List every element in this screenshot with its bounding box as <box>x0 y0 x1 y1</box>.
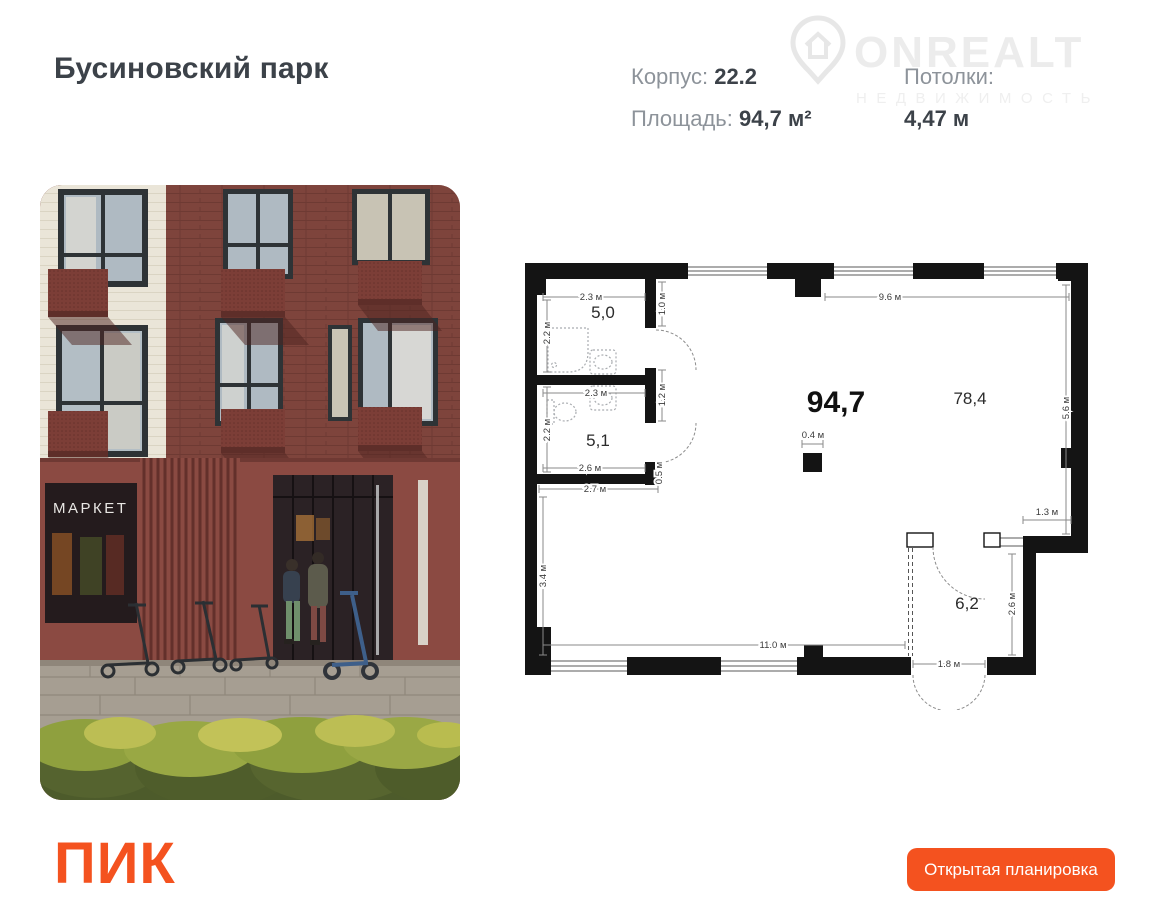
area-label: Площадь: <box>631 106 733 131</box>
dim-label: 11.0 м <box>760 640 787 651</box>
dim-label: 2.6 м <box>1007 593 1018 615</box>
dim-label: 2.2 м <box>542 322 553 344</box>
dim-label: 2.2 м <box>542 419 553 441</box>
floorplan: 2.3 м 9.6 м 2.3 м 2.6 м 2.7 м 1.3 м 11.0… <box>523 260 1093 710</box>
korpus-label: Корпус: <box>631 64 708 89</box>
window <box>328 325 352 421</box>
room-label: 5,1 <box>586 431 610 450</box>
dim-label: 1.2 м <box>657 384 668 406</box>
location-pin-house-icon <box>793 18 843 81</box>
total-area-label: 94,7 <box>807 386 865 419</box>
market-sign-text: МАРКЕТ <box>53 500 128 517</box>
dim-label: 9.6 м <box>879 292 901 303</box>
facade-ground-floor: МАРКЕТ <box>40 458 460 665</box>
room-label: 6,2 <box>955 594 979 613</box>
area-value: 94,7 м² <box>739 106 812 131</box>
ceilings-row: Потолки: <box>904 64 994 90</box>
ceilings-label: Потолки: <box>904 64 994 89</box>
watermark-tagline: НЕДВИЖИМОСТЬ <box>856 90 1100 107</box>
open-layout-button[interactable]: Открытая планировка <box>907 848 1115 891</box>
structural-column <box>803 453 822 472</box>
page-title: Бусиновский парк <box>54 52 329 86</box>
korpus-value: 22.2 <box>714 64 757 89</box>
window <box>352 189 430 265</box>
storefront-market: МАРКЕТ <box>45 483 137 623</box>
dashed-boundary <box>909 548 913 656</box>
ceilings-value: 4,47 м <box>904 106 969 131</box>
room-label: 5,0 <box>591 303 615 322</box>
listing-card: { "header": { "title": "Бусиновский парк… <box>0 0 1152 910</box>
window <box>223 189 293 279</box>
glass-partitions <box>907 533 1000 547</box>
dim-label: 2.3 м <box>585 388 607 399</box>
room-label: 78,4 <box>953 389 986 408</box>
lit-wall-sliver <box>418 480 428 645</box>
pik-developer-logo: ПИК <box>54 830 176 897</box>
dim-label: 2.7 м <box>584 484 606 495</box>
dim-label: 3.4 м <box>538 565 549 587</box>
dim-label: 2.6 м <box>579 463 601 474</box>
dim-label: 2.3 м <box>580 292 602 303</box>
dim-label: 5.6 м <box>1061 397 1072 419</box>
bushes <box>40 715 460 800</box>
dim-label: 1.3 м <box>1036 507 1058 518</box>
dim-label: 0.4 м <box>802 430 824 441</box>
dim-label: 0.5 м <box>654 462 665 484</box>
room-labels: 94,7 78,4 5,0 5,1 6,2 <box>586 303 986 613</box>
ceilings-value-row: 4,47 м <box>904 106 969 132</box>
korpus-row: Корпус: 22.2 <box>631 64 757 90</box>
dim-label: 1.0 м <box>657 293 668 315</box>
area-row: Площадь: 94,7 м² <box>631 106 812 132</box>
building-photo: МАРКЕТ <box>40 185 460 800</box>
slat-fins <box>140 458 240 660</box>
shower-tray-icon <box>548 328 588 372</box>
dim-label: 1.8 м <box>938 659 960 670</box>
